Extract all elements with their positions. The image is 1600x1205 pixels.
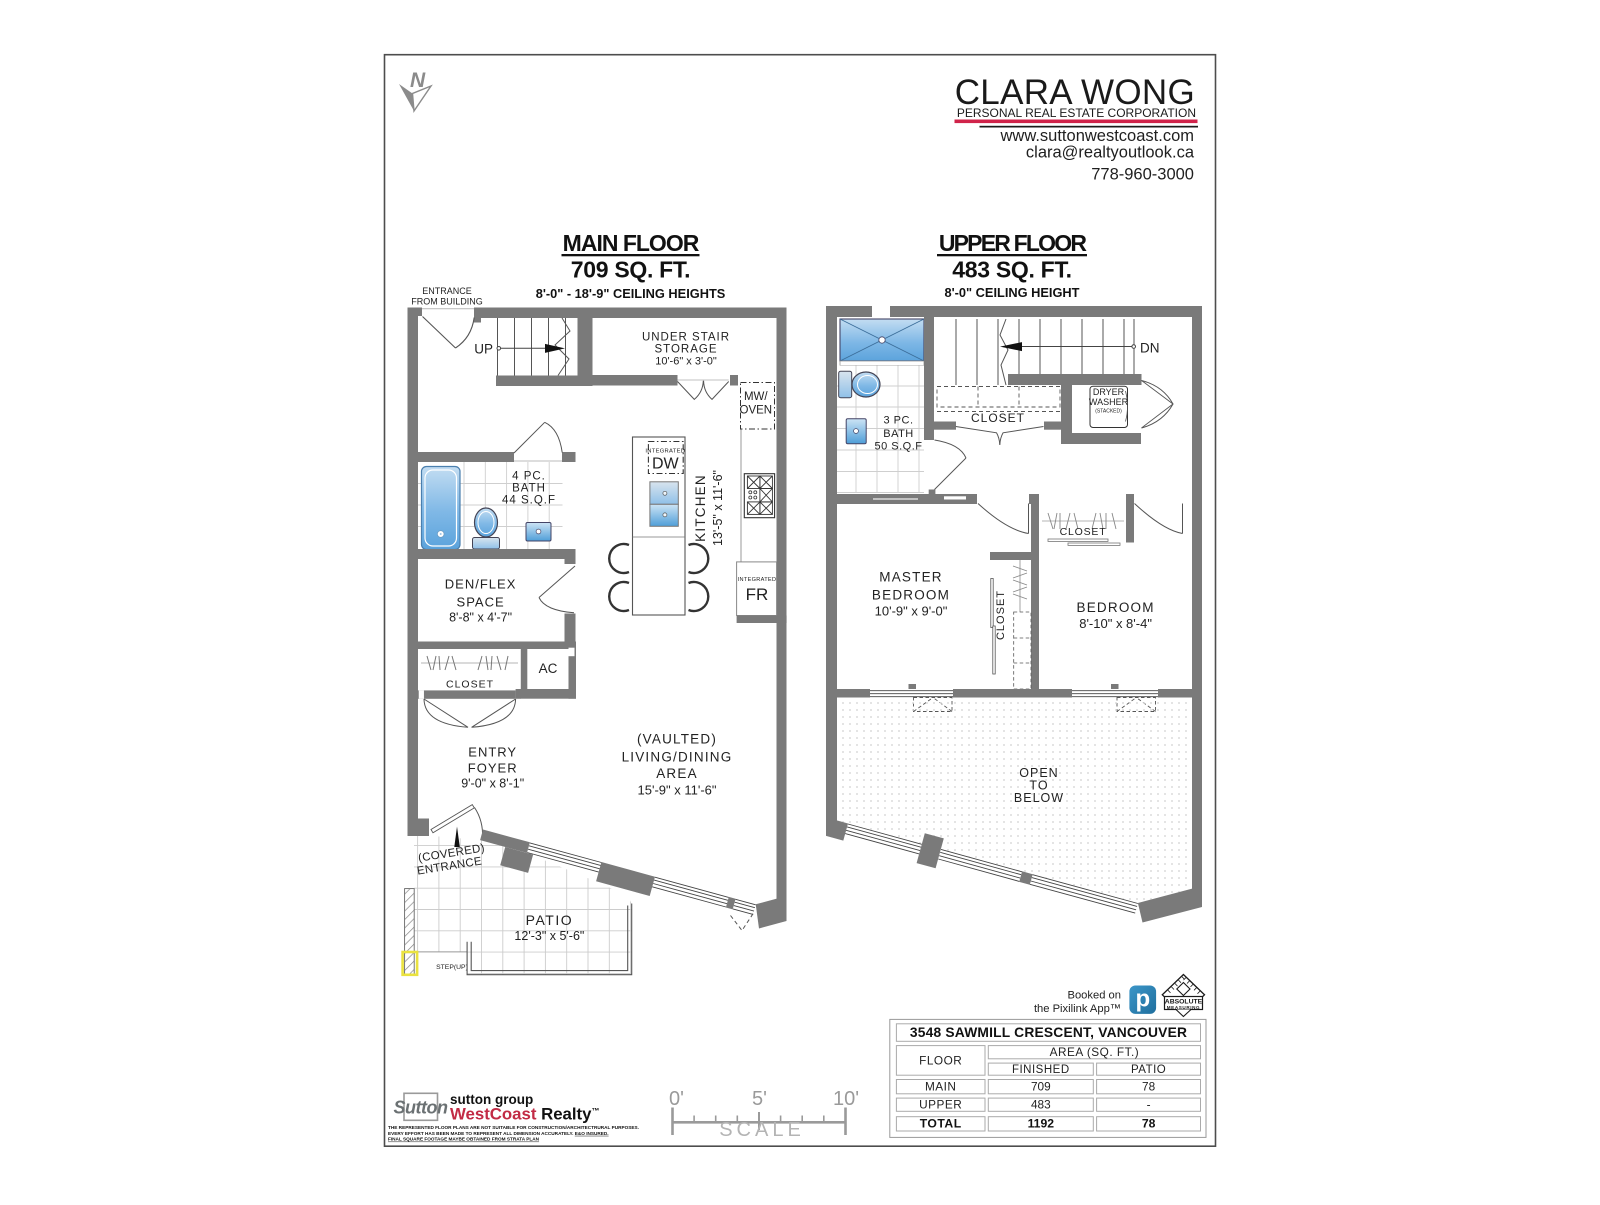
- svg-text:PERSONAL REAL ESTATE CORPORATI: PERSONAL REAL ESTATE CORPORATION: [957, 106, 1196, 120]
- svg-text:13'-5" x 11'-6": 13'-5" x 11'-6": [711, 470, 725, 546]
- svg-text:OVEN: OVEN: [740, 405, 773, 417]
- svg-text:WestCoast Realty™: WestCoast Realty™: [450, 1105, 599, 1124]
- svg-text:AC: AC: [539, 661, 558, 676]
- svg-text:709 SQ. FT.: 709 SQ. FT.: [571, 257, 690, 283]
- svg-text:BELOW: BELOW: [1014, 791, 1064, 805]
- svg-text:10'-9" x 9'-0": 10'-9" x 9'-0": [875, 604, 948, 619]
- svg-text:SPACE: SPACE: [457, 595, 505, 610]
- svg-text:8'-0" - 18'-9" CEILING HEIGHTS: 8'-0" - 18'-9" CEILING HEIGHTS: [536, 286, 726, 301]
- svg-text:(VAULTED): (VAULTED): [637, 732, 717, 747]
- svg-text:UP: UP: [474, 342, 493, 357]
- svg-text:UNDER STAIR: UNDER STAIR: [642, 332, 730, 344]
- svg-text:LIVING/DINING: LIVING/DINING: [622, 750, 733, 765]
- svg-text:12'-3" x 5'-6": 12'-3" x 5'-6": [514, 929, 584, 943]
- svg-text:DN: DN: [1140, 341, 1160, 356]
- svg-text:CLOSET: CLOSET: [995, 590, 1007, 640]
- svg-text:BATH: BATH: [512, 483, 546, 495]
- svg-text:FOYER: FOYER: [468, 761, 518, 776]
- svg-text:3548 SAWMILL CRESCENT, VANCOUV: 3548 SAWMILL CRESCENT, VANCOUVER: [910, 1025, 1187, 1040]
- svg-text:Sutton: Sutton: [394, 1098, 448, 1118]
- svg-text:UPPER: UPPER: [919, 1098, 962, 1112]
- svg-text:9'-0" x 8'-1": 9'-0" x 8'-1": [461, 777, 524, 791]
- svg-text:THE REPRESENTED FLOOR PLANS AR: THE REPRESENTED FLOOR PLANS ARE NOT SUIT…: [388, 1125, 639, 1130]
- svg-text:DRYER: DRYER: [1093, 387, 1125, 397]
- svg-text:8'-0" CEILING HEIGHT: 8'-0" CEILING HEIGHT: [945, 285, 1080, 300]
- svg-text:CLOSET: CLOSET: [1060, 526, 1107, 538]
- svg-text:STEP(UP): STEP(UP): [436, 964, 468, 971]
- svg-text:TOTAL: TOTAL: [920, 1117, 962, 1131]
- svg-text:KITCHEN: KITCHEN: [693, 474, 708, 542]
- svg-text:FR: FR: [746, 585, 769, 604]
- svg-text:ENTRY: ENTRY: [468, 745, 517, 760]
- svg-text:BEDROOM: BEDROOM: [872, 588, 950, 603]
- svg-text:DEN/FLEX: DEN/FLEX: [445, 577, 517, 592]
- svg-text:778-960-3000: 778-960-3000: [1091, 166, 1194, 184]
- svg-text:WASHER: WASHER: [1089, 397, 1129, 407]
- svg-text:FINISHED: FINISHED: [1012, 1064, 1070, 1076]
- svg-text:15'-9" x 11'-6": 15'-9" x 11'-6": [638, 783, 717, 798]
- svg-text:-: -: [1147, 1098, 1151, 1112]
- svg-text:INTEGRATED: INTEGRATED: [645, 449, 685, 455]
- svg-text:INTEGRATED: INTEGRATED: [738, 577, 777, 583]
- svg-text:1192: 1192: [1028, 1117, 1055, 1131]
- svg-text:10'-6" x 3'-0": 10'-6" x 3'-0": [655, 356, 717, 368]
- svg-text:78: 78: [1142, 1117, 1156, 1131]
- svg-text:5': 5': [752, 1088, 767, 1110]
- svg-text:UPPER FLOOR: UPPER FLOOR: [939, 230, 1088, 256]
- svg-text:STORAGE: STORAGE: [654, 344, 717, 356]
- svg-text:8'-10" x 8'-4": 8'-10" x 8'-4": [1079, 616, 1152, 631]
- svg-text:FINAL SQUARE FOOTAGE MAYBE OBT: FINAL SQUARE FOOTAGE MAYBE OBTAINED FROM…: [388, 1137, 540, 1142]
- svg-text:AREA (SQ. FT.): AREA (SQ. FT.): [1050, 1045, 1140, 1059]
- svg-text:PATIO: PATIO: [1131, 1064, 1166, 1076]
- svg-text:FLOOR: FLOOR: [919, 1054, 962, 1068]
- svg-text:44 S.Q.F: 44 S.Q.F: [502, 495, 556, 507]
- svg-text:BATH: BATH: [883, 428, 914, 440]
- svg-text:DW: DW: [652, 456, 680, 473]
- svg-text:483: 483: [1031, 1098, 1051, 1112]
- svg-text:483 SQ. FT.: 483 SQ. FT.: [952, 257, 1071, 283]
- svg-text:p: p: [1135, 986, 1150, 1013]
- svg-text:4 PC.: 4 PC.: [512, 471, 546, 483]
- svg-text:MAIN: MAIN: [925, 1080, 957, 1094]
- svg-text:CLOSET: CLOSET: [446, 679, 494, 691]
- svg-text:3 PC.: 3 PC.: [883, 415, 913, 427]
- svg-text:CLOSET: CLOSET: [971, 411, 1025, 425]
- svg-text:the Pixilink App™: the Pixilink App™: [1034, 1003, 1121, 1015]
- svg-text:EVERY EFFORT HAS BEEN MADE TO: EVERY EFFORT HAS BEEN MADE TO REPRESENT …: [388, 1131, 609, 1136]
- svg-text:78: 78: [1142, 1080, 1156, 1094]
- svg-text:50 S.Q.F: 50 S.Q.F: [874, 441, 922, 453]
- svg-text:www.suttonwestcoast.com: www.suttonwestcoast.com: [1000, 127, 1195, 145]
- svg-text:8'-8" x 4'-7": 8'-8" x 4'-7": [449, 611, 512, 625]
- svg-text:0': 0': [669, 1088, 684, 1110]
- svg-text:Booked on: Booked on: [1068, 990, 1122, 1002]
- svg-text:ENTRANCE: ENTRANCE: [422, 286, 472, 296]
- svg-text:(STACKED): (STACKED): [1095, 409, 1122, 415]
- svg-text:MW/: MW/: [744, 391, 768, 403]
- svg-text:BEDROOM: BEDROOM: [1077, 600, 1155, 615]
- svg-text:MEASURING: MEASURING: [1167, 1005, 1200, 1010]
- svg-text:SCALE: SCALE: [719, 1119, 805, 1141]
- svg-text:MASTER: MASTER: [879, 570, 942, 585]
- svg-text:PATIO: PATIO: [526, 912, 573, 928]
- svg-text:AREA: AREA: [656, 766, 698, 781]
- svg-text:MAIN FLOOR: MAIN FLOOR: [563, 230, 700, 256]
- svg-text:10': 10': [833, 1088, 859, 1110]
- svg-text:FROM BUILDING: FROM BUILDING: [411, 297, 483, 307]
- svg-text:709: 709: [1031, 1080, 1051, 1094]
- svg-text:clara@realtyoutlook.ca: clara@realtyoutlook.ca: [1026, 144, 1195, 162]
